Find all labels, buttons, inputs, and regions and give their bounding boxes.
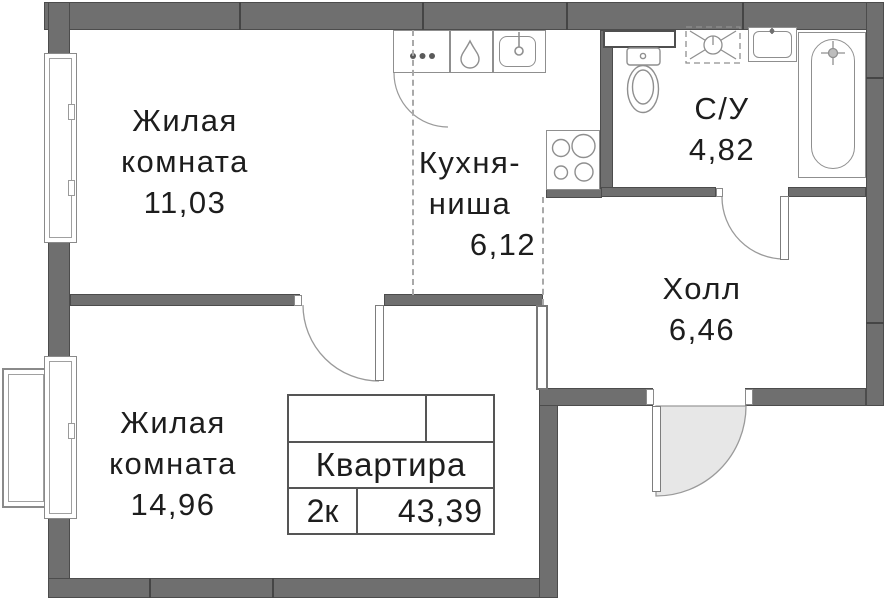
floor-plan: Жилая комната 11,03 Кухня- ниша 6,12 С/У… [0,0,886,600]
room-name-line: Жилая [48,402,298,443]
room-area: 4,82 [642,129,802,170]
room-label-hall: Холл 6,46 [622,268,782,350]
water-drop-icon [461,41,479,68]
apartment-stamp-table: Квартира 2к 43,39 [287,394,495,535]
balcony-door-frame [8,374,44,502]
stamp-cell-empty [289,396,427,441]
stamp-apartment-type: 2к [289,489,358,533]
stamp-row-empty [289,396,493,443]
balcony-door-open [2,368,50,508]
room-label-bathroom: С/У 4,82 [642,88,802,170]
room-area: 6,12 [456,224,550,265]
stamp-cell-empty [427,396,493,441]
room2-door-arc [303,305,379,381]
room-label-kitchen: Кухня- ниша 6,12 [390,142,550,265]
stamp-total-area: 43,39 [358,489,493,533]
room-name-line: С/У [642,88,802,129]
entrance-door-swing [656,406,746,496]
washing-machine-icon [686,27,740,63]
room-name-line: Кухня- [390,142,550,183]
bathroom-door-arc [722,197,784,259]
room-name-line: Холл [622,268,782,309]
room-name-line: ниша [390,183,550,224]
room-area: 6,46 [622,309,782,350]
room-name-line: Жилая [60,100,310,141]
room-area: 11,03 [60,182,310,223]
room-name-line: комната [60,141,310,182]
room-name-line: комната [48,443,298,484]
bathroom-door-leaf [780,196,789,260]
room-label-living2: Жилая комната 14,96 [48,402,298,525]
room2-door-leaf [375,305,384,381]
sink-tap-icon [770,28,773,34]
room-label-living1: Жилая комната 11,03 [60,100,310,223]
kitchen-tap-icon [515,32,523,55]
bathtub-faucet-icon [821,41,845,65]
cabinet-door-arc [394,73,448,127]
stamp-title: Квартира [289,443,493,489]
stove-burners-icon [553,135,596,182]
entrance-door-leaf [652,406,661,492]
stamp-row-values: 2к 43,39 [289,489,493,533]
room-area: 14,96 [48,484,298,525]
